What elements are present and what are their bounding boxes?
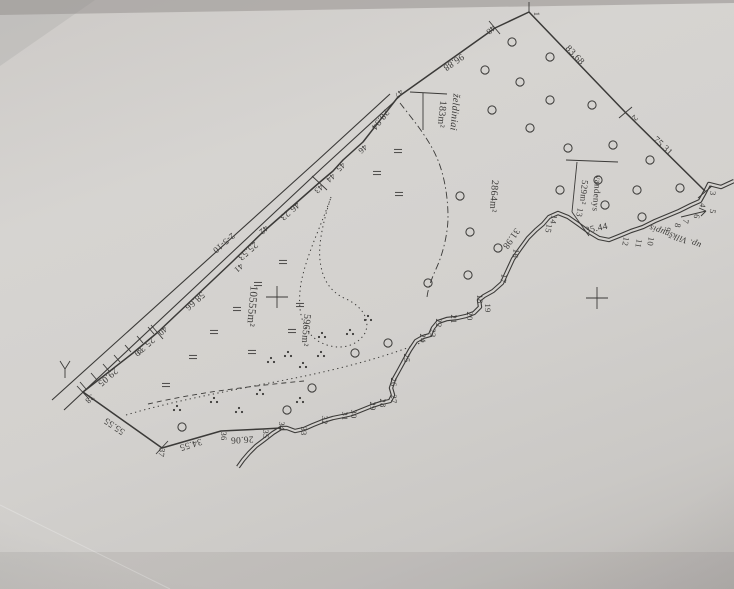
shrub-dot [273,361,275,363]
shrub-dot [299,397,301,399]
point-number-label: 34 [277,421,287,431]
orchard-circle [638,213,646,221]
tick-line [566,160,618,162]
shrub-dot [318,336,320,338]
point-number-label: 23 [428,328,438,337]
orchard-circle [676,184,684,192]
dashed-line [148,381,304,404]
landuse-dotted-lines [126,197,425,415]
point-number-label: 12 [620,236,631,247]
point-number-label: 28 [378,398,388,407]
area-label: 5965m² [299,314,313,347]
tick-line [60,361,65,369]
shrub-dot [241,411,243,413]
orchard-circle [464,271,472,279]
point-number-label: 27 [389,394,399,403]
point-number-label: 22 [434,318,444,327]
point-number-label: 18 [475,294,485,303]
area-label: 2864m² [487,180,500,213]
orchard-circle [283,406,291,414]
shrub-dot [321,332,323,334]
shrub-dot [262,393,264,395]
point-number-label: 37 [156,447,167,458]
shrub-dot [267,361,269,363]
dashdot-line [400,103,448,297]
point-number-label: 6 [692,213,703,219]
point-number-label: 29 [368,401,378,410]
point-number-label: 32 [320,415,330,424]
paper-corner-shade [0,0,95,66]
point-number-label: 20 [465,311,475,320]
shrub-dot [317,355,319,357]
point-number-label: 10 [645,236,656,247]
orchard-circle [456,192,464,200]
point-number-label: 35 [261,429,271,438]
area-label: želdiniai [447,92,461,131]
shrub-dot [370,319,372,321]
orchard-circle [481,66,489,74]
shrub-dot [320,351,322,353]
point-number-label: 41 [232,262,245,276]
distance-label: 31.98 [500,226,521,250]
orchard-circle [556,186,564,194]
photo-bottom-shadow [0,552,734,589]
shrub-dot [296,401,298,403]
orchard-circle [178,423,186,431]
orchard-circle [308,384,316,392]
point-number-label: 43 [312,183,325,197]
survey-map: 1234567891011121314151617181920212223242… [0,0,734,589]
point-number-label: 31 [340,411,350,420]
distance-label: 35.44 [584,222,608,237]
shrub-dot [213,397,215,399]
distance-label: 58.66 [182,289,206,312]
tick-line [91,373,97,380]
shrub-dot [324,336,326,338]
shrub-dot [302,362,304,364]
shrub-dot [176,405,178,407]
point-number-label: 24 [418,333,428,343]
shrub-dot [346,333,348,335]
shrub-dot [367,315,369,317]
area-label: 183m² [435,100,448,128]
shrub-dot [259,389,261,391]
shrub-dot [290,355,292,357]
landuse-dashdot-lines [400,103,448,297]
distance-label: 55.55 [103,415,127,436]
point-number-label: 5 [708,208,719,214]
area-label: 10555m² [244,285,260,328]
point-number-label: 36 [219,431,229,440]
paper-top-edge [0,0,734,15]
orchard-circle [546,53,554,61]
point-number-label: 26 [389,377,399,386]
distance-label: 83.68 [563,44,586,67]
tick-line [80,382,86,389]
orchard-circle [351,349,359,357]
distance-label: 75.31 [651,135,674,158]
distance-label: 25.53 [235,239,259,262]
orchard-circle [588,101,596,109]
tick-line [410,92,447,94]
orchard-circle [488,106,496,114]
road-line [64,102,394,410]
shrub-dot [302,401,304,403]
point-number-label: 13 [574,207,585,218]
shrub-dot [235,411,237,413]
distance-label: 34.55 [178,436,203,452]
orchard-circle [424,279,432,287]
point-number-label: 11 [633,238,644,248]
tick-line [572,162,577,212]
orchard-circle [609,141,617,149]
shrub-dot [299,366,301,368]
distance-label: 26.06 [230,433,253,444]
point-number-label: 33 [299,426,309,435]
orchard-circle [646,156,654,164]
orchard-symbols [178,38,684,431]
area-label: 529m² [578,180,590,205]
tick-line [65,361,70,369]
orchard-circle [516,78,524,86]
shrub-symbols [173,315,372,413]
point-number-label: 17 [498,273,509,284]
shrub-dot [287,351,289,353]
orchard-circle [564,144,572,152]
point-number-label: 19 [483,303,493,312]
point-number-label: 1 [532,12,542,17]
point-number-label: 16 [510,248,521,259]
shrub-dot [323,355,325,357]
shrub-dot [238,407,240,409]
point-number-label: 15 [543,223,554,234]
point-number-label: 25 [402,353,412,362]
orchard-circle [384,339,392,347]
point-number-label: 3 [708,191,718,196]
shrub-dot [210,401,212,403]
area-label: vandenys [590,175,603,212]
shrub-dot [364,319,366,321]
shrub-dot [173,409,175,411]
shrub-dot [305,366,307,368]
shrub-dot [179,409,181,411]
orchard-circle [508,38,516,46]
orchard-circle [466,228,474,236]
distance-label: 96.88 [441,51,465,72]
point-number-label: 21 [449,314,459,323]
shrub-dot [270,357,272,359]
distance-label: 46.23 [277,199,301,222]
tick-line [699,208,706,211]
point-number-label: 47 [392,88,405,102]
orchard-circle [526,124,534,132]
shrub-dot [256,393,258,395]
point-number-label: 45 [334,161,347,175]
orchard-circle [546,96,554,104]
ticks-and-leaders [60,2,712,454]
point-number-label: 40 [156,325,169,339]
scanned-survey-photo: 1234567891011121314151617181920212223242… [0,0,734,589]
point-number-label: 46 [356,143,369,157]
shrub-dot [349,329,351,331]
shrub-dot [284,355,286,357]
shrub-dot [216,401,218,403]
point-number-label: 44 [324,172,338,186]
shrub-dot [352,333,354,335]
orchard-circle [633,186,641,194]
